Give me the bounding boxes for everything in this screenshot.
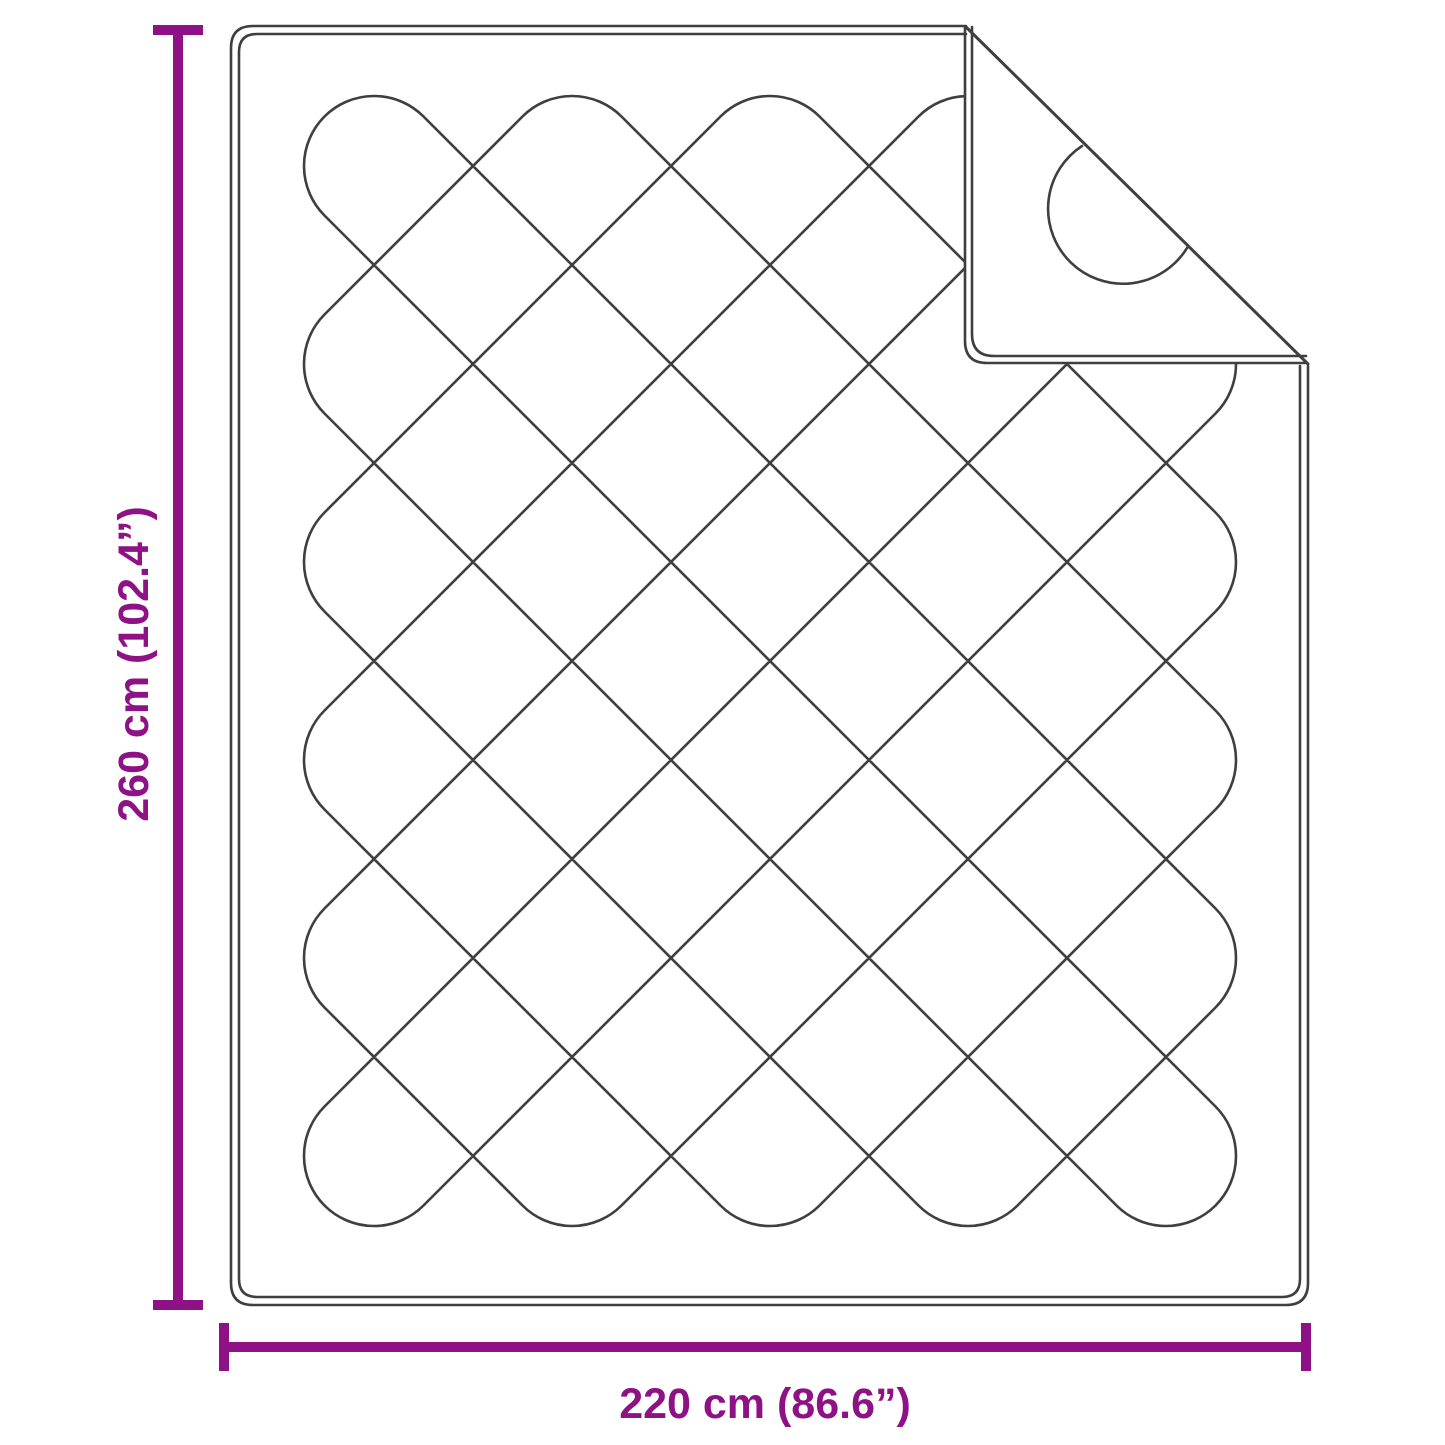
width-dimension-label: 220 cm (86.6”)	[619, 1380, 911, 1428]
product-dimension-diagram: 260 cm (102.4”) 220 cm (86.6”)	[0, 0, 1445, 1445]
fold-flap	[965, 27, 1308, 364]
height-dimension-label: 260 cm (102.4”)	[110, 506, 158, 822]
height-dimension: 260 cm (102.4”)	[110, 30, 203, 1305]
width-dimension: 220 cm (86.6”)	[224, 1323, 1306, 1428]
blanket-diagram-canvas: 260 cm (102.4”) 220 cm (86.6”)	[0, 0, 1445, 1445]
